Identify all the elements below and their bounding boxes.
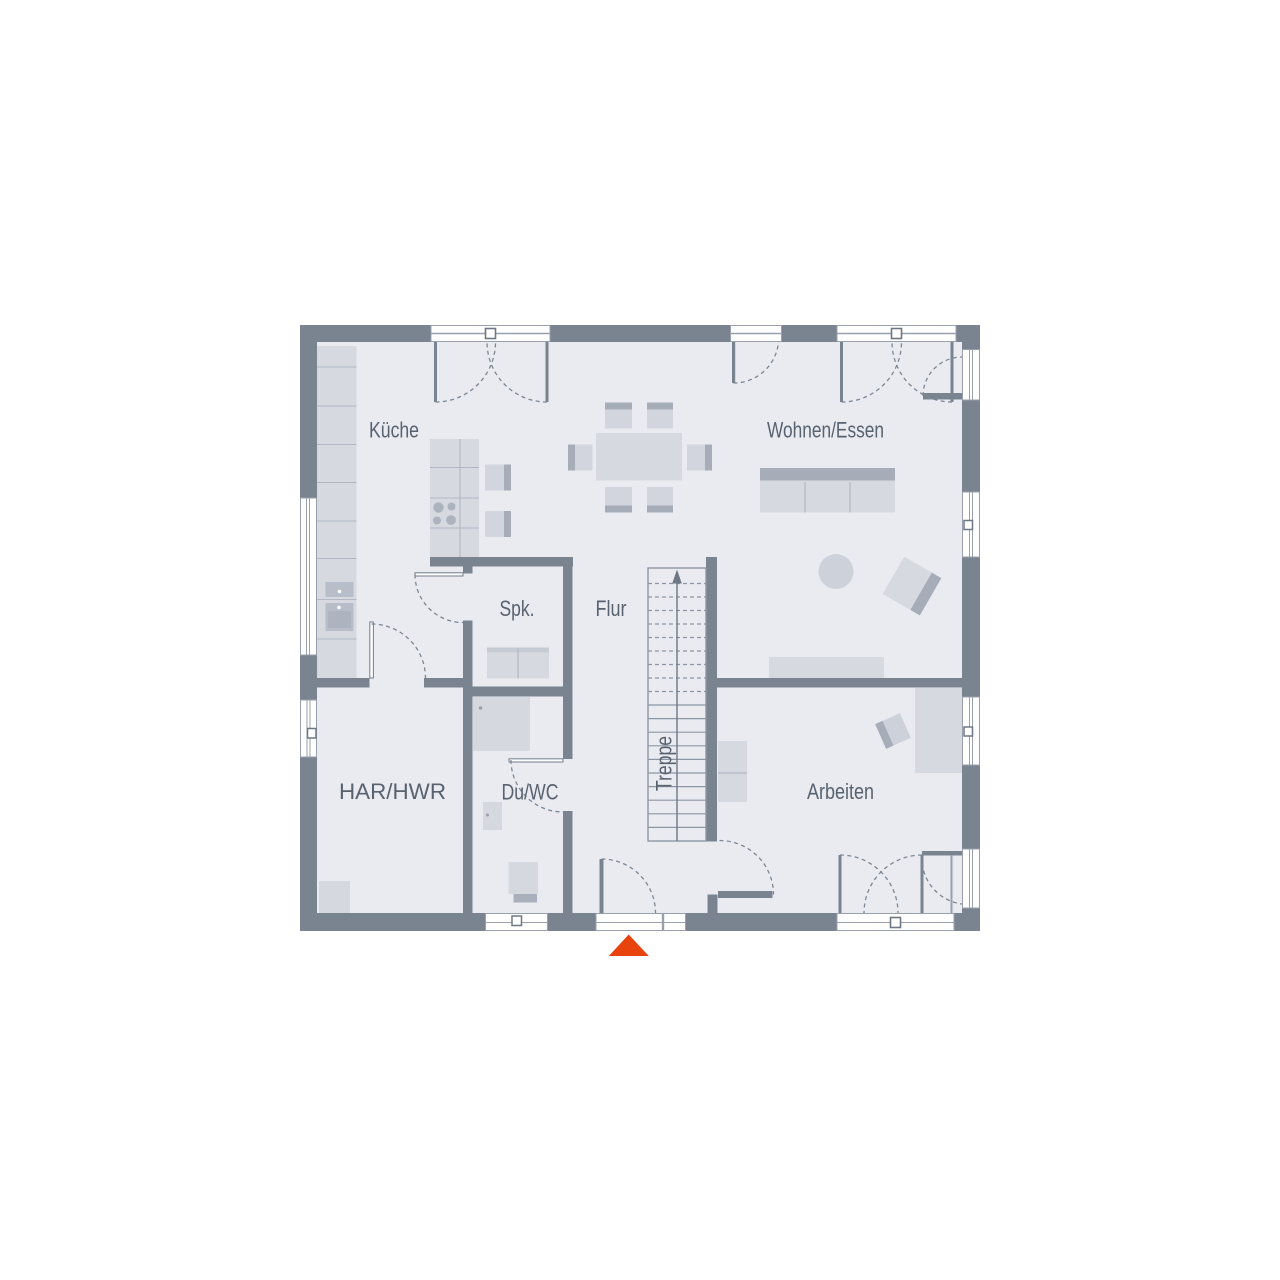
svg-text:Arbeiten: Arbeiten — [807, 779, 874, 804]
svg-text:Treppe: Treppe — [652, 736, 677, 791]
svg-text:Küche: Küche — [369, 418, 419, 443]
svg-text:HAR/HWR: HAR/HWR — [339, 779, 446, 804]
svg-text:Spk.: Spk. — [500, 596, 535, 621]
svg-text:Wohnen/Essen: Wohnen/Essen — [767, 418, 884, 443]
svg-text:Du/WC: Du/WC — [502, 780, 559, 805]
svg-text:Flur: Flur — [596, 596, 627, 621]
